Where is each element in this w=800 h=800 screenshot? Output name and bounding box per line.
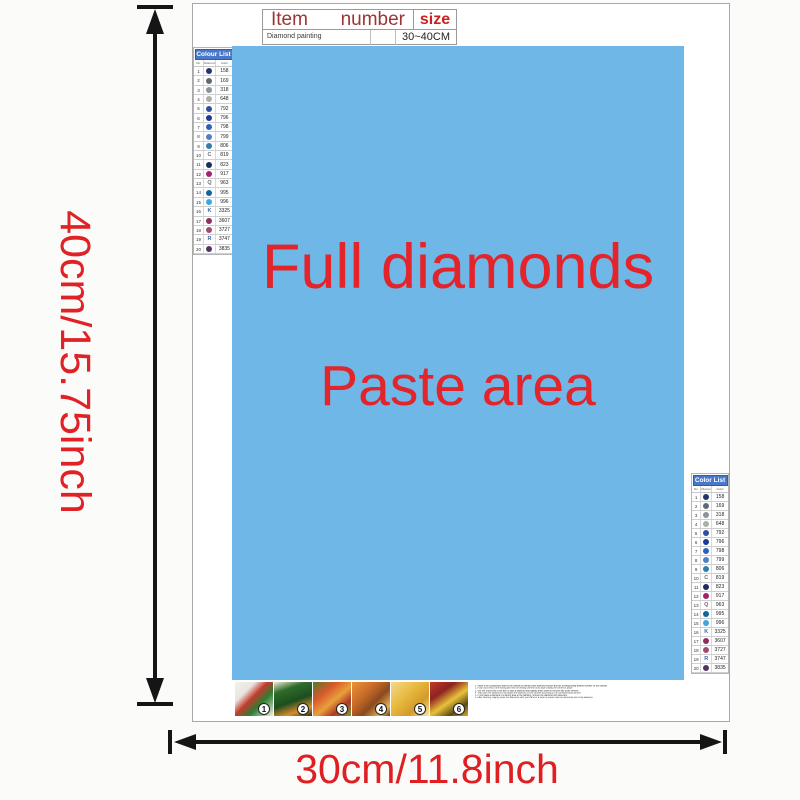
color-list-row: 14995: [692, 610, 728, 619]
color-code: 3727: [216, 227, 233, 233]
item-name-cell: Diamond painting: [263, 30, 371, 45]
item-table-header: Item number size: [263, 10, 456, 30]
color-code: 963: [712, 602, 728, 608]
color-code: 996: [712, 620, 728, 626]
color-list-row: 7798: [692, 547, 728, 556]
color-code: 806: [712, 566, 728, 572]
paste-area: Full diamonds Paste area: [232, 46, 684, 680]
color-dot-icon: [206, 171, 212, 177]
color-code: 3835: [712, 665, 728, 671]
color-number: 7: [692, 547, 701, 555]
color-symbol: [701, 520, 712, 528]
color-list-row: 183727: [692, 646, 728, 655]
instructions-text: 1. Paste it the composition area to the …: [475, 685, 702, 699]
color-number: 10: [194, 151, 204, 159]
color-number: 13: [692, 601, 701, 609]
color-dot-icon: [206, 106, 212, 112]
step-number-badge: 2: [297, 703, 309, 715]
item-table-row: Diamond painting 30~40CM: [263, 30, 456, 45]
color-code: 169: [216, 78, 233, 84]
color-number: 2: [194, 76, 204, 84]
color-number: 18: [692, 646, 701, 654]
color-code: 648: [712, 521, 728, 527]
color-list-row: 16K3325: [194, 207, 233, 216]
item-number-cell: [371, 30, 396, 45]
color-code: 798: [216, 124, 233, 130]
color-list-subheader: No.DiamondColor: [194, 60, 233, 67]
color-code: 792: [712, 530, 728, 536]
color-letter-symbol: C: [207, 152, 211, 158]
color-symbol: [701, 565, 712, 573]
color-code: 3325: [216, 208, 233, 214]
color-code: 3607: [216, 218, 233, 224]
color-symbol: [204, 142, 216, 150]
color-code: 806: [216, 143, 233, 149]
item-header-label: Item: [271, 9, 308, 31]
color-symbol: [204, 198, 216, 206]
color-list-row: 16K3325: [692, 628, 728, 637]
color-code: 819: [216, 152, 233, 158]
color-code: 169: [712, 503, 728, 509]
color-dot-icon: [703, 566, 709, 572]
color-list-row: 6796: [692, 538, 728, 547]
color-number: 1: [692, 493, 701, 501]
color-number: 15: [194, 198, 204, 206]
color-number: 5: [194, 104, 204, 112]
color-letter-symbol: Q: [207, 180, 211, 186]
color-symbol: R: [701, 655, 712, 663]
color-code: 158: [712, 494, 728, 500]
step-photo-6: 6: [430, 682, 468, 716]
color-list-row: 6796: [194, 114, 233, 123]
color-letter-symbol: K: [704, 629, 708, 635]
color-dot-icon: [206, 124, 212, 130]
color-number: 17: [194, 217, 204, 225]
color-list-column-header: Diamond: [701, 486, 712, 492]
item-size-cell: 30~40CM: [396, 30, 456, 45]
color-list-row: 173607: [194, 217, 233, 226]
color-symbol: C: [204, 151, 216, 159]
color-number: 9: [692, 565, 701, 573]
color-number: 19: [692, 655, 701, 663]
color-code: 995: [216, 190, 233, 196]
color-symbol: [204, 226, 216, 234]
color-list-column-header: Diamond: [204, 60, 216, 66]
color-number: 9: [194, 142, 204, 150]
color-number: 14: [194, 188, 204, 196]
color-list-row: 5792: [692, 529, 728, 538]
color-dot-icon: [703, 665, 709, 671]
color-symbol: [701, 583, 712, 591]
color-code: 917: [712, 593, 728, 599]
color-list-row: 11823: [194, 160, 233, 169]
color-dot-icon: [703, 557, 709, 563]
color-list-right: Color ListNo.DiamondColor115821693318464…: [691, 473, 729, 674]
paste-area-title-line2: Paste area: [232, 353, 684, 419]
color-list-row: 1158: [692, 493, 728, 502]
color-code: 917: [216, 171, 233, 177]
color-letter-symbol: C: [704, 575, 708, 581]
color-list-row: 183727: [194, 226, 233, 235]
color-symbol: [204, 188, 216, 196]
step-number-badge: 5: [414, 703, 426, 715]
color-list-row: 14995: [194, 188, 233, 197]
color-list-row: 8799: [692, 556, 728, 565]
color-dot-icon: [703, 611, 709, 617]
color-code: 3727: [712, 647, 728, 653]
color-list-column-header: No.: [194, 60, 204, 66]
color-dot-icon: [703, 593, 709, 599]
canvas-sheet: Item number size Diamond painting 30~40C…: [192, 3, 730, 722]
color-code: 796: [712, 539, 728, 545]
color-number: 12: [194, 170, 204, 178]
color-list-row: 19R3747: [194, 235, 233, 244]
width-dimension-label: 30cm/11.8inch: [277, 746, 577, 793]
color-code: 799: [216, 134, 233, 140]
color-list-row: 5792: [194, 104, 233, 113]
color-number: 19: [194, 235, 204, 243]
color-dot-icon: [703, 494, 709, 500]
color-list-row: 203835: [692, 664, 728, 673]
color-code: 819: [712, 575, 728, 581]
color-list-row: 10C819: [692, 574, 728, 583]
color-number: 7: [194, 123, 204, 131]
color-dot-icon: [206, 227, 212, 233]
color-dot-icon: [206, 218, 212, 224]
color-code: 823: [712, 584, 728, 590]
color-code: 799: [712, 557, 728, 563]
arrow-down-icon: [146, 678, 164, 703]
color-list-left: Colour ListNo.DiamondColor11582169331846…: [193, 47, 234, 255]
color-dot-icon: [206, 115, 212, 121]
color-list-row: 2169: [692, 502, 728, 511]
color-list-row: 8799: [194, 132, 233, 141]
color-list-row: 15996: [692, 619, 728, 628]
color-dot-icon: [703, 620, 709, 626]
color-dot-icon: [703, 584, 709, 590]
color-number: 18: [194, 226, 204, 234]
color-list-title: Color List: [693, 475, 728, 486]
color-list-column-header: Color: [216, 60, 233, 66]
color-symbol: [701, 592, 712, 600]
color-symbol: [204, 114, 216, 122]
color-number: 15: [692, 619, 701, 627]
color-symbol: K: [204, 207, 216, 215]
color-number: 4: [692, 520, 701, 528]
color-code: 796: [216, 115, 233, 121]
color-list-row: 1158: [194, 67, 233, 76]
color-list-row: 203835: [194, 245, 233, 254]
color-list-row: 15996: [194, 198, 233, 207]
color-code: 318: [216, 87, 233, 93]
color-symbol: [701, 538, 712, 546]
color-symbol: [204, 170, 216, 178]
color-dot-icon: [703, 638, 709, 644]
color-symbol: [701, 502, 712, 510]
color-symbol: [701, 493, 712, 501]
color-symbol: [204, 245, 216, 253]
color-list-row: 3318: [692, 511, 728, 520]
color-dot-icon: [703, 548, 709, 554]
color-dot-icon: [206, 96, 212, 102]
color-list-row: 12917: [194, 170, 233, 179]
color-list-subheader: No.DiamondColor: [692, 486, 728, 493]
color-symbol: C: [701, 574, 712, 582]
color-number: 13: [194, 179, 204, 187]
color-number: 2: [692, 502, 701, 510]
color-number: 17: [692, 637, 701, 645]
step-number-badge: 3: [336, 703, 348, 715]
color-code: 963: [216, 180, 233, 186]
color-dot-icon: [703, 503, 709, 509]
color-list-row: 7798: [194, 123, 233, 132]
color-letter-symbol: R: [704, 656, 708, 662]
color-symbol: [701, 646, 712, 654]
color-number: 4: [194, 95, 204, 103]
color-code: 3607: [712, 638, 728, 644]
color-letter-symbol: R: [207, 236, 211, 242]
color-dot-icon: [206, 199, 212, 205]
color-number: 16: [692, 628, 701, 636]
color-number: 8: [194, 132, 204, 140]
color-symbol: [701, 619, 712, 627]
color-dot-icon: [206, 162, 212, 168]
color-code: 318: [712, 512, 728, 518]
color-code: 823: [216, 162, 233, 168]
color-list-row: 2169: [194, 76, 233, 85]
color-dot-icon: [206, 87, 212, 93]
color-symbol: [701, 547, 712, 555]
color-list-row: 11823: [692, 583, 728, 592]
color-list-row: 19R3747: [692, 655, 728, 664]
color-dot-icon: [703, 647, 709, 653]
width-arrow-right-cap: [723, 730, 727, 754]
color-dot-icon: [206, 190, 212, 196]
color-symbol: [204, 160, 216, 168]
color-number: 3: [194, 86, 204, 94]
color-list-row: 13Q963: [194, 179, 233, 188]
color-symbol: [701, 664, 712, 672]
color-list-title: Colour List: [195, 49, 233, 60]
color-number: 6: [692, 538, 701, 546]
color-symbol: [701, 529, 712, 537]
color-symbol: K: [701, 628, 712, 636]
color-symbol: [204, 67, 216, 75]
color-number: 20: [194, 245, 204, 253]
color-symbol: Q: [701, 601, 712, 609]
color-symbol: [701, 637, 712, 645]
color-list-row: 4648: [194, 95, 233, 104]
step-number-badge: 6: [453, 703, 465, 715]
step-photo-strip: 123456: [235, 682, 468, 716]
instruction-line: 6. After finishing, slightly press the d…: [475, 697, 702, 699]
color-symbol: [204, 104, 216, 112]
color-symbol: [204, 217, 216, 225]
color-number: 6: [194, 114, 204, 122]
color-list-row: 173607: [692, 637, 728, 646]
step-number-badge: 1: [258, 703, 270, 715]
color-letter-symbol: Q: [704, 602, 708, 608]
color-code: 798: [712, 548, 728, 554]
step-photo-4: 4: [352, 682, 390, 716]
color-letter-symbol: K: [207, 208, 211, 214]
color-dot-icon: [206, 68, 212, 74]
color-list-row: 3318: [194, 86, 233, 95]
color-dot-icon: [206, 134, 212, 140]
color-number: 11: [692, 583, 701, 591]
color-list-column-header: Color: [712, 486, 728, 492]
color-symbol: Q: [204, 179, 216, 187]
paste-area-title-line1: Full diamonds: [232, 231, 684, 303]
step-photo-2: 2: [274, 682, 312, 716]
color-code: 996: [216, 199, 233, 205]
color-code: 648: [216, 96, 233, 102]
color-symbol: [204, 123, 216, 131]
color-list-column-header: No.: [692, 486, 701, 492]
color-code: 3747: [216, 236, 233, 242]
step-photo-1: 1: [235, 682, 273, 716]
color-number: 1: [194, 67, 204, 75]
color-list-row: 9806: [194, 142, 233, 151]
step-photo-3: 3: [313, 682, 351, 716]
item-size-table: Item number size Diamond painting 30~40C…: [262, 9, 457, 45]
color-number: 5: [692, 529, 701, 537]
color-list-row: 12917: [692, 592, 728, 601]
color-number: 11: [194, 160, 204, 168]
arrow-right-icon: [700, 734, 722, 750]
color-code: 995: [712, 611, 728, 617]
color-symbol: R: [204, 235, 216, 243]
color-number: 14: [692, 610, 701, 618]
step-photo-5: 5: [391, 682, 429, 716]
color-dot-icon: [206, 246, 212, 252]
color-number: 12: [692, 592, 701, 600]
color-dot-icon: [703, 539, 709, 545]
color-list-row: 10C819: [194, 151, 233, 160]
color-symbol: [204, 76, 216, 84]
product-size-diagram: 40cm/15.75inch Item number size Diamond …: [0, 0, 800, 800]
color-list-row: 4648: [692, 520, 728, 529]
color-dot-icon: [703, 512, 709, 518]
color-dot-icon: [206, 78, 212, 84]
width-arrow-left-cap: [168, 730, 172, 754]
color-dot-icon: [703, 521, 709, 527]
color-symbol: [204, 95, 216, 103]
color-number: 8: [692, 556, 701, 564]
color-number: 20: [692, 664, 701, 672]
color-dot-icon: [206, 143, 212, 149]
height-arrow-line: [153, 30, 157, 680]
color-symbol: [701, 610, 712, 618]
color-number: 10: [692, 574, 701, 582]
height-arrow-bottom-cap: [137, 702, 173, 706]
color-code: 792: [216, 106, 233, 112]
step-number-badge: 4: [375, 703, 387, 715]
color-list-row: 13Q963: [692, 601, 728, 610]
color-dot-icon: [703, 530, 709, 536]
height-dimension-label: 40cm/15.75inch: [52, 197, 98, 527]
color-number: 16: [194, 207, 204, 215]
color-symbol: [204, 86, 216, 94]
color-code: 3747: [712, 656, 728, 662]
number-header-label: number: [341, 9, 405, 31]
color-symbol: [701, 511, 712, 519]
color-symbol: [701, 556, 712, 564]
color-number: 3: [692, 511, 701, 519]
color-list-row: 9806: [692, 565, 728, 574]
size-header-label: size: [413, 10, 456, 29]
color-code: 3835: [216, 246, 233, 252]
width-arrow-line: [192, 740, 704, 744]
color-code: 3325: [712, 629, 728, 635]
color-code: 158: [216, 68, 233, 74]
color-symbol: [204, 132, 216, 140]
